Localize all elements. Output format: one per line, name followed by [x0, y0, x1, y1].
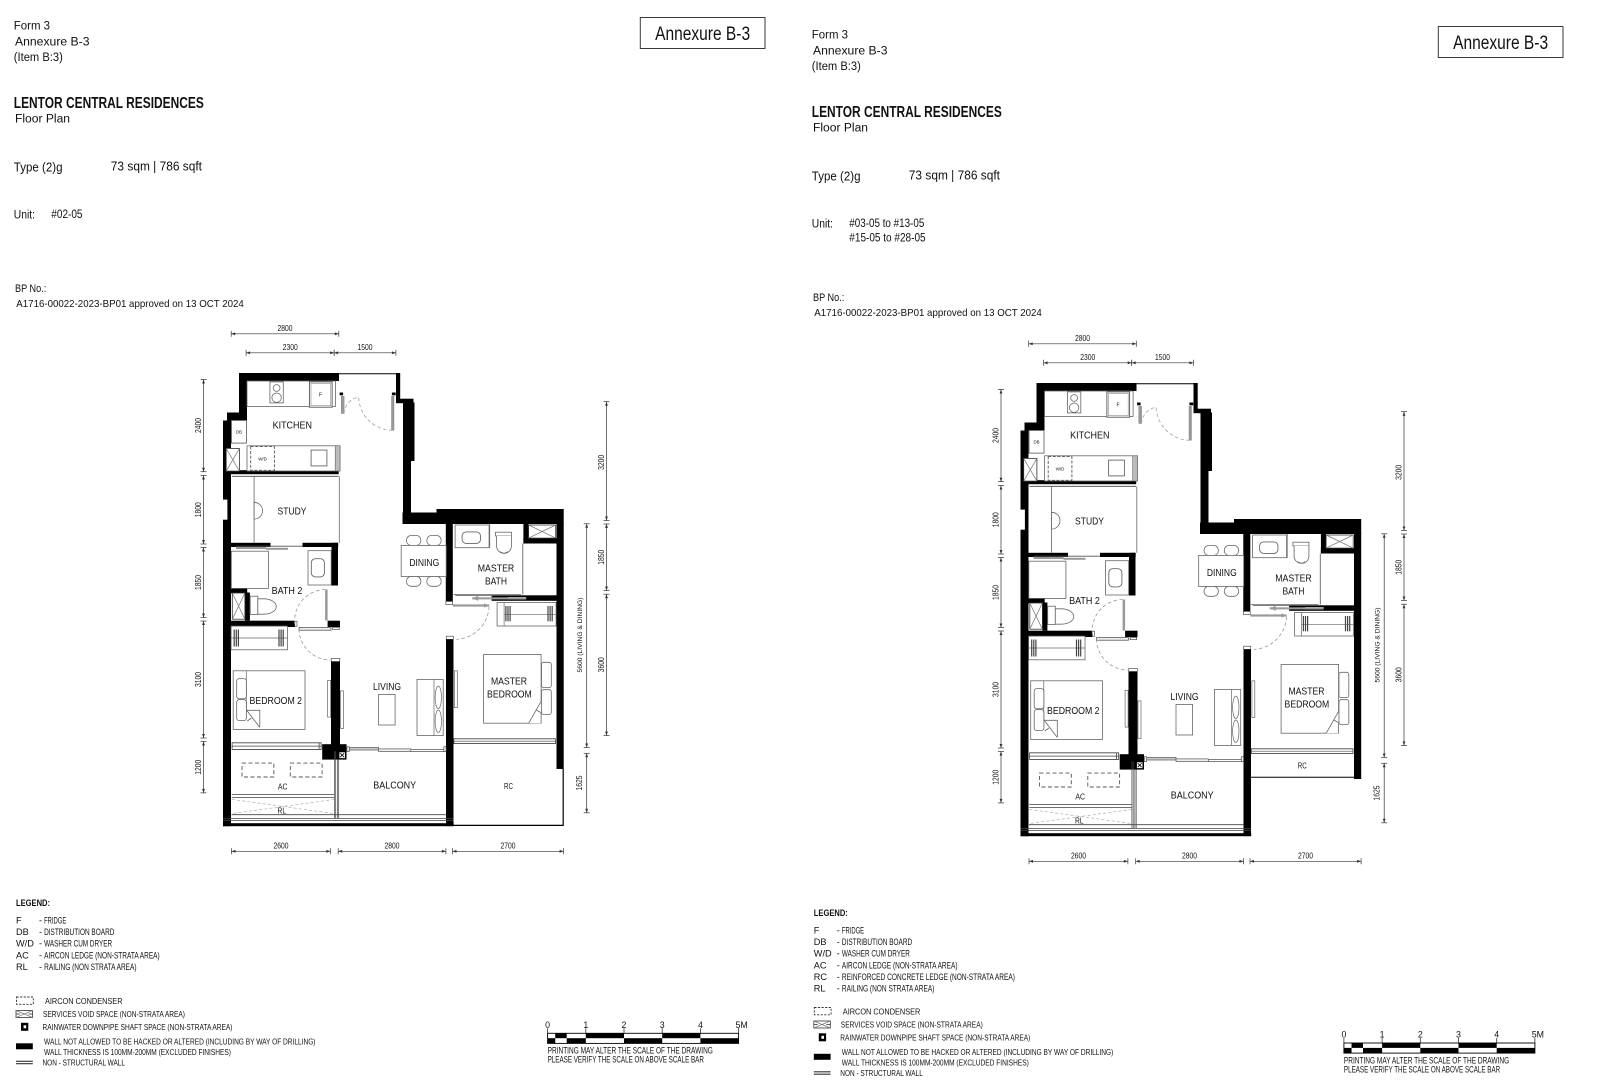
svg-text:5600 (LIVING & DINING): 5600 (LIVING & DINING) [1375, 608, 1382, 683]
svg-text:WALL NOT ALLOWED TO BE HACKED: WALL NOT ALLOWED TO BE HACKED OR ALTERED… [842, 1047, 1114, 1057]
svg-text:SERVICES VOID SPACE (NON-STRAT: SERVICES VOID SPACE (NON-STRATA AREA) [43, 1009, 185, 1019]
svg-text:RL: RL [278, 807, 287, 816]
svg-text:MASTER: MASTER [1288, 687, 1324, 698]
svg-text:-: - [837, 984, 840, 994]
svg-text:BATH 2: BATH 2 [1069, 596, 1100, 607]
svg-text:LIVING: LIVING [373, 682, 401, 693]
svg-text:3600: 3600 [597, 657, 606, 672]
svg-text:2700: 2700 [501, 842, 516, 851]
svg-text:F: F [16, 916, 22, 926]
svg-text:1500: 1500 [1155, 353, 1170, 362]
svg-text:2600: 2600 [274, 842, 289, 851]
svg-text:NON - STRUCTURAL WALL: NON - STRUCTURAL WALL [840, 1068, 923, 1078]
svg-text:Annexure B-3: Annexure B-3 [15, 36, 89, 48]
svg-text:DINING: DINING [1207, 568, 1237, 579]
svg-text:DB: DB [1033, 440, 1039, 445]
svg-text:W/D: W/D [16, 939, 34, 949]
svg-text:AC: AC [278, 782, 288, 791]
svg-text:1800: 1800 [991, 512, 1000, 527]
svg-text:PLEASE VERIFY THE SCALE ON ABO: PLEASE VERIFY THE SCALE ON ABOVE SCALE B… [1344, 1064, 1500, 1074]
svg-text:3100: 3100 [991, 682, 1000, 697]
svg-text:(Item B:3): (Item B:3) [812, 61, 861, 73]
svg-text:SERVICES VOID SPACE (NON-STRAT: SERVICES VOID SPACE (NON-STRATA AREA) [841, 1020, 983, 1030]
svg-text:MASTER: MASTER [478, 563, 515, 574]
svg-text:-: - [837, 960, 840, 970]
svg-text:STUDY: STUDY [278, 507, 307, 518]
svg-text:AIRCON CONDENSER: AIRCON CONDENSER [45, 996, 123, 1006]
svg-text:3200: 3200 [1394, 464, 1403, 479]
svg-text:RL: RL [814, 984, 826, 994]
svg-text:(Item B:3): (Item B:3) [14, 52, 63, 64]
svg-text:1850: 1850 [597, 549, 606, 564]
svg-text:BEDROOM 2: BEDROOM 2 [250, 696, 303, 707]
svg-text:MASTER: MASTER [491, 677, 527, 688]
svg-text:1200: 1200 [194, 759, 203, 774]
svg-text:1850: 1850 [194, 575, 203, 590]
svg-text:F: F [814, 926, 820, 936]
svg-text:Unit:: Unit: [812, 217, 833, 231]
svg-text:A1716-00022-2023-BP01 approved: A1716-00022-2023-BP01 approved on 13 OCT… [814, 307, 1042, 319]
svg-text:-: - [837, 926, 840, 936]
svg-text:LEGEND:: LEGEND: [814, 908, 848, 919]
svg-text:73 sqm | 786 sqft: 73 sqm | 786 sqft [111, 160, 203, 174]
svg-text:Type (2)g: Type (2)g [14, 161, 63, 175]
svg-text:-: - [837, 937, 840, 947]
svg-text:73 sqm | 786 sqft: 73 sqm | 786 sqft [909, 169, 1001, 183]
svg-text:AC: AC [1075, 792, 1085, 801]
svg-text:W/D: W/D [814, 949, 832, 959]
svg-text:-: - [39, 962, 42, 972]
svg-text:DB: DB [814, 937, 827, 947]
svg-text:-: - [39, 916, 42, 926]
svg-text:#03-05 to #13-05: #03-05 to #13-05 [849, 216, 924, 230]
svg-text:-: - [39, 927, 42, 937]
svg-text:F: F [319, 393, 322, 399]
svg-text:2400: 2400 [194, 418, 203, 433]
svg-text:DISTRIBUTION BOARD: DISTRIBUTION BOARD [44, 927, 115, 937]
svg-text:AIRCON LEDGE (NON-STRATA AREA): AIRCON LEDGE (NON-STRATA AREA) [44, 950, 160, 960]
svg-text:#15-05 to #28-05: #15-05 to #28-05 [849, 230, 925, 244]
svg-text:-: - [39, 939, 42, 949]
svg-text:-: - [39, 950, 42, 960]
svg-text:RAILING (NON STRATA AREA): RAILING (NON STRATA AREA) [842, 984, 935, 994]
svg-text:W/D: W/D [1056, 467, 1065, 472]
svg-text:3200: 3200 [597, 454, 606, 469]
svg-text:F: F [1116, 403, 1119, 409]
svg-text:DISTRIBUTION BOARD: DISTRIBUTION BOARD [842, 937, 913, 947]
svg-text:PLEASE VERIFY THE SCALE ON ABO: PLEASE VERIFY THE SCALE ON ABOVE SCALE B… [548, 1055, 704, 1065]
svg-text:AIRCON LEDGE (NON-STRATA AREA): AIRCON LEDGE (NON-STRATA AREA) [842, 960, 958, 970]
svg-text:RC: RC [1298, 762, 1307, 771]
svg-text:BATH: BATH [485, 577, 507, 588]
svg-text:Type (2)g: Type (2)g [812, 170, 861, 184]
svg-text:NON - STRUCTURAL WALL: NON - STRUCTURAL WALL [43, 1057, 126, 1067]
svg-text:W/D: W/D [258, 457, 267, 462]
svg-text:1625: 1625 [575, 775, 584, 790]
svg-text:RAILING (NON STRATA AREA): RAILING (NON STRATA AREA) [44, 962, 137, 972]
svg-text:BEDROOM: BEDROOM [487, 689, 532, 700]
svg-text:WASHER CUM DRYER: WASHER CUM DRYER [44, 939, 112, 949]
svg-text:2700: 2700 [1298, 852, 1313, 861]
svg-text:-: - [837, 972, 840, 982]
svg-text:KITCHEN: KITCHEN [1070, 431, 1109, 442]
svg-text:Annexure B-3: Annexure B-3 [1453, 32, 1548, 54]
svg-text:Form 3: Form 3 [812, 30, 848, 42]
svg-text:LENTOR CENTRAL RESIDENCES: LENTOR CENTRAL RESIDENCES [14, 95, 204, 112]
svg-text:3100: 3100 [194, 672, 203, 687]
svg-text:WALL THICKNESS IS 100MM-200MM: WALL THICKNESS IS 100MM-200MM (EXCLUDED … [44, 1047, 231, 1057]
svg-text:1850: 1850 [1394, 559, 1403, 574]
svg-text:RL: RL [16, 962, 28, 972]
svg-text:LEGEND:: LEGEND: [16, 898, 50, 909]
svg-text:LENTOR CENTRAL RESIDENCES: LENTOR CENTRAL RESIDENCES [812, 104, 1002, 121]
svg-text:2400: 2400 [991, 428, 1000, 443]
svg-text:Annexure B-3: Annexure B-3 [813, 45, 888, 57]
svg-text:DB: DB [16, 927, 29, 937]
svg-text:RAINWATER DOWNPIPE SHAFT SPACE: RAINWATER DOWNPIPE SHAFT SPACE (NON-STRA… [840, 1033, 1030, 1043]
svg-text:WALL NOT ALLOWED TO BE HACKED: WALL NOT ALLOWED TO BE HACKED OR ALTERED… [44, 1036, 316, 1046]
svg-text:Annexure B-3: Annexure B-3 [655, 23, 750, 45]
svg-text:MASTER: MASTER [1275, 573, 1312, 584]
svg-text:LIVING: LIVING [1171, 692, 1199, 703]
svg-text:RC: RC [814, 972, 828, 982]
svg-text:BP No.:: BP No.: [813, 292, 844, 304]
svg-text:RC: RC [504, 782, 513, 791]
svg-text:5M: 5M [735, 1020, 747, 1030]
svg-text:KITCHEN: KITCHEN [273, 421, 312, 432]
svg-text:2800: 2800 [1075, 334, 1090, 343]
svg-text:AIRCON CONDENSER: AIRCON CONDENSER [843, 1006, 921, 1016]
svg-text:WASHER CUM DRYER: WASHER CUM DRYER [842, 949, 910, 959]
svg-text:1800: 1800 [194, 502, 203, 517]
svg-text:Unit:: Unit: [14, 208, 35, 222]
svg-text:2800: 2800 [385, 842, 400, 851]
svg-text:REINFORCED CONCRETE LEDGE (NON: REINFORCED CONCRETE LEDGE (NON-STRATA AR… [842, 972, 1015, 982]
svg-text:Form 3: Form 3 [14, 21, 50, 33]
svg-text:5M: 5M [1532, 1030, 1544, 1040]
svg-text:1200: 1200 [991, 769, 1000, 784]
svg-text:RL: RL [1075, 817, 1084, 826]
svg-text:BALCONY: BALCONY [1171, 791, 1214, 802]
svg-text:BEDROOM 2: BEDROOM 2 [1047, 706, 1100, 717]
svg-text:5600 (LIVING & DINING): 5600 (LIVING & DINING) [577, 598, 584, 673]
svg-text:2300: 2300 [1080, 353, 1095, 362]
svg-text:STUDY: STUDY [1075, 517, 1104, 528]
svg-text:BATH 2: BATH 2 [272, 586, 303, 597]
svg-text:WALL THICKNESS IS 100MM-200MM: WALL THICKNESS IS 100MM-200MM (EXCLUDED … [842, 1057, 1029, 1067]
svg-text:2800: 2800 [1182, 852, 1197, 861]
svg-text:#02-05: #02-05 [51, 207, 82, 221]
svg-text:DB: DB [236, 430, 242, 435]
svg-text:A1716-00022-2023-BP01 approved: A1716-00022-2023-BP01 approved on 13 OCT… [16, 298, 244, 310]
svg-text:BALCONY: BALCONY [373, 781, 416, 792]
svg-text:BP No.:: BP No.: [15, 283, 46, 295]
svg-text:DINING: DINING [409, 558, 439, 569]
svg-text:2800: 2800 [278, 324, 293, 333]
svg-text:Floor Plan: Floor Plan [15, 114, 70, 126]
svg-text:1625: 1625 [1373, 785, 1382, 800]
svg-text:Floor Plan: Floor Plan [813, 123, 868, 135]
svg-text:1850: 1850 [991, 585, 1000, 600]
svg-text:3600: 3600 [1394, 667, 1403, 682]
svg-text:FRIDGE: FRIDGE [44, 916, 66, 926]
svg-text:2300: 2300 [283, 343, 298, 352]
svg-text:AC: AC [16, 950, 29, 960]
svg-text:FRIDGE: FRIDGE [842, 926, 864, 936]
svg-text:RAINWATER DOWNPIPE SHAFT SPACE: RAINWATER DOWNPIPE SHAFT SPACE (NON-STRA… [43, 1022, 233, 1032]
svg-text:1500: 1500 [358, 343, 373, 352]
svg-text:-: - [837, 949, 840, 959]
svg-text:BATH: BATH [1283, 587, 1305, 598]
svg-text:2600: 2600 [1071, 852, 1086, 861]
svg-text:AC: AC [814, 960, 827, 970]
svg-text:BEDROOM: BEDROOM [1285, 699, 1330, 710]
